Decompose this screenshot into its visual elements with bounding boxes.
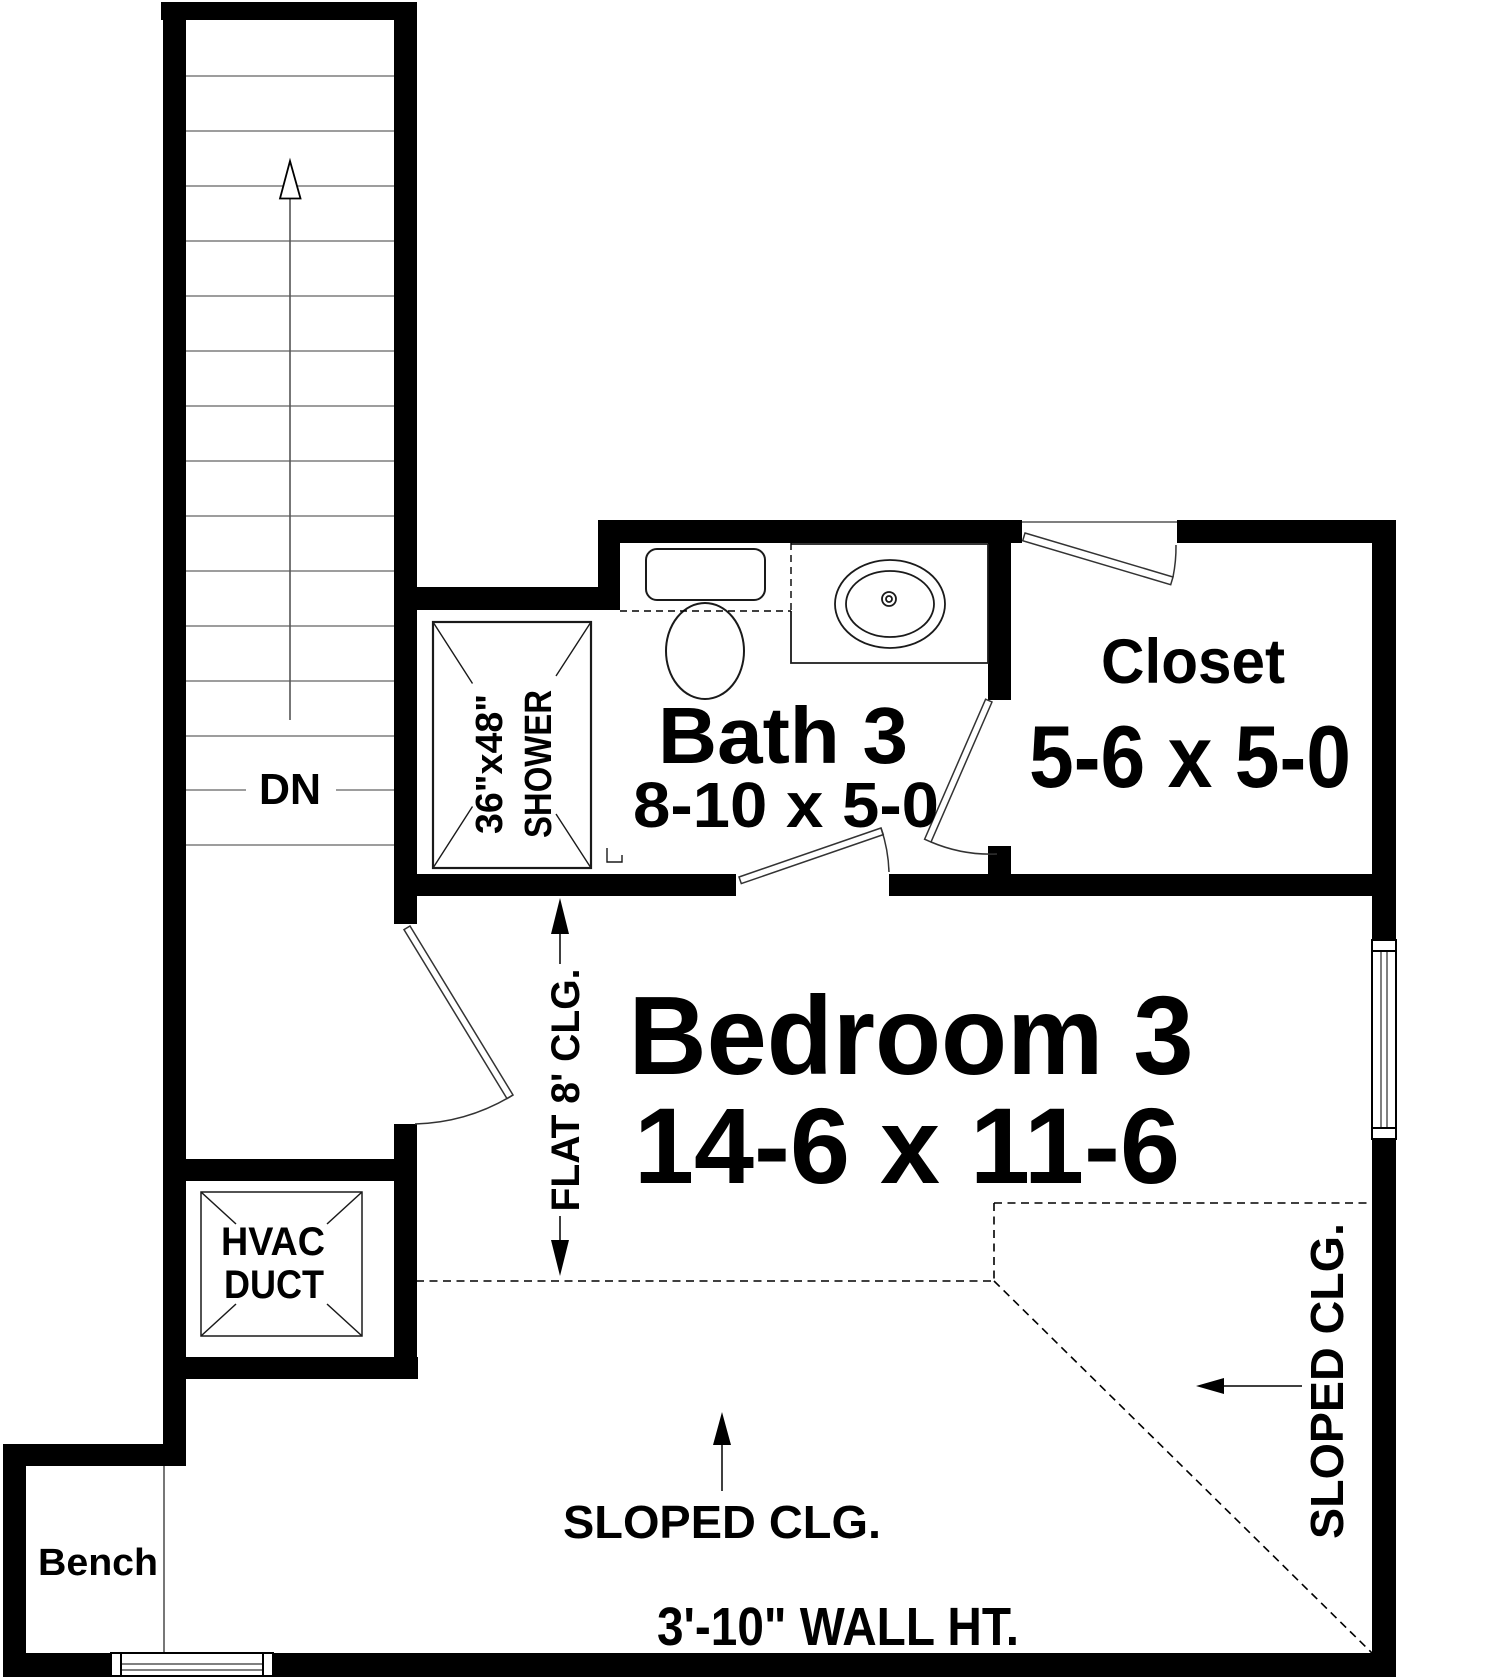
svg-text:Bench: Bench bbox=[38, 1542, 158, 1584]
svg-text:3'-10" WALL HT.: 3'-10" WALL HT. bbox=[657, 1597, 1019, 1657]
svg-text:Bath 3: Bath 3 bbox=[658, 691, 908, 780]
svg-text:Bedroom 3: Bedroom 3 bbox=[629, 974, 1194, 1098]
svg-text:FLAT 8' CLG.: FLAT 8' CLG. bbox=[544, 969, 588, 1212]
svg-text:14-6 x 11-6: 14-6 x 11-6 bbox=[634, 1085, 1180, 1206]
svg-text:8-10 x 5-0: 8-10 x 5-0 bbox=[633, 769, 939, 841]
svg-text:SLOPED CLG.: SLOPED CLG. bbox=[1301, 1223, 1353, 1539]
svg-text:5-6 x 5-0: 5-6 x 5-0 bbox=[1029, 707, 1351, 806]
svg-text:DUCT: DUCT bbox=[224, 1263, 324, 1307]
svg-text:DN: DN bbox=[259, 765, 321, 814]
svg-text:Closet: Closet bbox=[1101, 627, 1285, 697]
svg-text:HVAC: HVAC bbox=[221, 1220, 325, 1264]
svg-text:SHOWER: SHOWER bbox=[518, 690, 560, 838]
svg-text:SLOPED CLG.: SLOPED CLG. bbox=[563, 1496, 881, 1548]
svg-text:36"x48": 36"x48" bbox=[469, 694, 511, 834]
